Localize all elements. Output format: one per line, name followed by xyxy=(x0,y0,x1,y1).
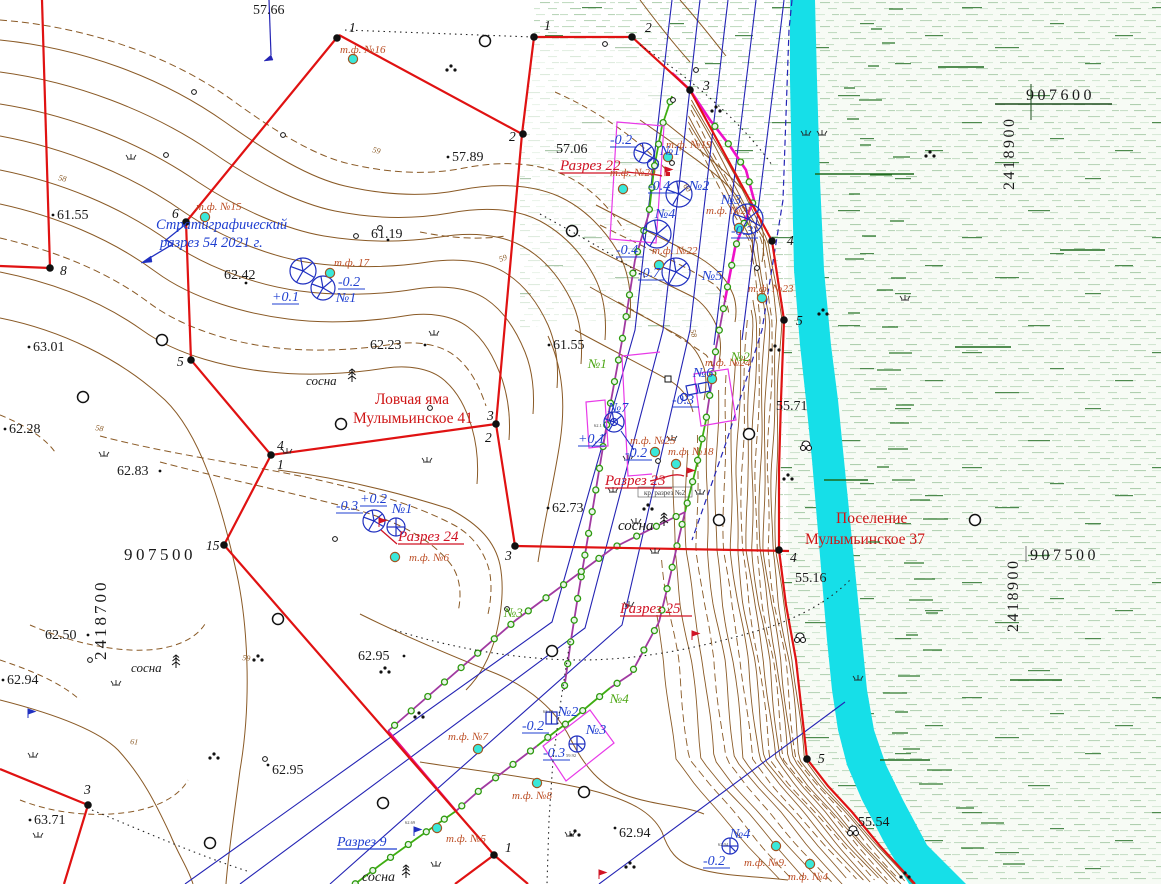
svg-text:5: 5 xyxy=(818,751,825,766)
svg-text:907500: 907500 xyxy=(1030,547,1099,564)
svg-text:1: 1 xyxy=(544,18,551,33)
svg-text:-0.3: -0.3 xyxy=(543,746,565,761)
svg-text:т.ф. №23: т.ф. №23 xyxy=(748,283,794,295)
svg-text:5: 5 xyxy=(796,313,803,328)
svg-text:т.ф. №4: т.ф. №4 xyxy=(788,871,829,883)
svg-text:2418900: 2418900 xyxy=(1005,559,1022,633)
svg-text:4: 4 xyxy=(790,550,797,565)
svg-text:62.04: 62.04 xyxy=(718,842,729,847)
svg-text:3: 3 xyxy=(504,548,512,563)
svg-text:63.01: 63.01 xyxy=(33,340,65,355)
svg-text:+0.2: +0.2 xyxy=(360,492,387,507)
svg-text:т.ф. №20: т.ф. №20 xyxy=(610,167,656,179)
svg-text:1: 1 xyxy=(277,457,284,472)
svg-text:№3: №3 xyxy=(585,723,606,738)
svg-text:-0.2: -0.2 xyxy=(703,854,725,869)
svg-text:№3: №3 xyxy=(503,605,523,620)
svg-text:1: 1 xyxy=(505,840,512,855)
svg-text:сосна: сосна xyxy=(131,660,162,675)
svg-text:Поселение: Поселение xyxy=(836,510,907,527)
svg-text:2: 2 xyxy=(485,430,492,445)
svg-text:разрез 54 2021 г.: разрез 54 2021 г. xyxy=(159,235,263,251)
svg-text:-0.2: -0.2 xyxy=(625,446,647,461)
svg-text:№2: №2 xyxy=(730,349,750,364)
svg-text:№6: №6 xyxy=(692,366,713,381)
svg-text:2: 2 xyxy=(645,20,652,35)
svg-text:Ловчая яма: Ловчая яма xyxy=(375,391,449,408)
svg-text:59: 59 xyxy=(242,653,251,663)
svg-text:62.1: 62.1 xyxy=(594,423,602,428)
svg-text:2: 2 xyxy=(509,129,516,144)
svg-text:-0.7: -0.7 xyxy=(638,266,661,281)
svg-text:т.ф. №5: т.ф. №5 xyxy=(446,833,487,845)
svg-text:15: 15 xyxy=(206,538,220,553)
svg-text:-0.4: -0.4 xyxy=(648,179,670,194)
svg-text:2418700: 2418700 xyxy=(91,580,110,661)
svg-text:т.ф. №8: т.ф. №8 xyxy=(512,790,553,802)
svg-text:55.54: 55.54 xyxy=(858,815,890,830)
svg-text:62.94: 62.94 xyxy=(619,826,651,841)
svg-text:№1: №1 xyxy=(587,356,607,371)
svg-text:2418900: 2418900 xyxy=(1001,117,1018,191)
svg-text:61: 61 xyxy=(130,737,139,747)
svg-text:№5: №5 xyxy=(701,269,722,284)
svg-text:62.23: 62.23 xyxy=(370,338,402,353)
svg-text:57.89: 57.89 xyxy=(452,150,484,165)
svg-text:61.55: 61.55 xyxy=(553,338,585,353)
svg-text:55.71: 55.71 xyxy=(776,399,808,414)
svg-text:№3: №3 xyxy=(720,193,741,208)
svg-text:Разрез 24: Разрез 24 xyxy=(397,529,459,545)
svg-text:62.42: 62.42 xyxy=(224,268,256,283)
svg-text:-0.3: -0.3 xyxy=(336,499,358,514)
svg-text:62.28: 62.28 xyxy=(9,422,41,437)
svg-text:59.92: 59.92 xyxy=(566,753,576,758)
svg-text:сосна: сосна xyxy=(306,373,337,388)
svg-text:т.ф. 17: т.ф. 17 xyxy=(334,257,370,269)
svg-text:63.71: 63.71 xyxy=(34,813,66,828)
svg-text:+0.1: +0.1 xyxy=(578,432,605,447)
svg-text:Мулымьинское 37: Мулымьинское 37 xyxy=(805,531,925,548)
svg-text:Мулымьинское 41: Мулымьинское 41 xyxy=(353,410,473,427)
svg-text:62.50: 62.50 xyxy=(45,628,77,643)
svg-text:5: 5 xyxy=(177,354,184,369)
svg-text:62.69: 62.69 xyxy=(405,820,416,825)
svg-text:3: 3 xyxy=(83,782,91,797)
svg-text:3: 3 xyxy=(702,78,710,93)
svg-text:-0.2: -0.2 xyxy=(522,719,544,734)
svg-text:Разрез 25: Разрез 25 xyxy=(619,601,681,617)
svg-text:т.ф. №15: т.ф. №15 xyxy=(196,201,242,213)
svg-text:3: 3 xyxy=(486,408,494,423)
svg-text:+0.1: +0.1 xyxy=(272,290,299,305)
svg-text:62.95: 62.95 xyxy=(358,649,390,664)
svg-text:№1: №1 xyxy=(335,291,356,306)
svg-text:кр. разрез №2: кр. разрез №2 xyxy=(644,489,686,497)
svg-text:т.ф. №7: т.ф. №7 xyxy=(448,731,489,743)
svg-text:907600: 907600 xyxy=(1026,87,1095,104)
svg-text:4: 4 xyxy=(787,233,794,248)
svg-text:сосна: сосна xyxy=(618,518,653,534)
svg-text:55.16: 55.16 xyxy=(795,571,827,586)
svg-text:№4: №4 xyxy=(729,827,750,842)
svg-text:1: 1 xyxy=(349,20,356,35)
svg-text:58: 58 xyxy=(95,423,104,433)
svg-text:62.95: 62.95 xyxy=(272,763,304,778)
svg-text:8: 8 xyxy=(60,263,67,278)
svg-text:62.94: 62.94 xyxy=(7,673,39,688)
svg-text:-0.2: -0.2 xyxy=(338,275,360,290)
svg-text:62.83: 62.83 xyxy=(117,464,149,479)
svg-text:-0.4: -0.4 xyxy=(616,243,638,258)
svg-text:62.73: 62.73 xyxy=(552,501,584,516)
svg-text:-0.2: -0.2 xyxy=(610,133,632,148)
svg-text:сосна: сосна xyxy=(362,870,395,884)
svg-text:№1: №1 xyxy=(659,144,680,159)
svg-text:№4: №4 xyxy=(654,207,675,222)
svg-text:-0.3: -0.3 xyxy=(672,393,694,408)
svg-text:61.55: 61.55 xyxy=(57,208,89,223)
svg-text:Стратиграфический: Стратиграфический xyxy=(156,217,288,233)
svg-text:-0.3: -0.3 xyxy=(731,224,753,239)
svg-text:№1: №1 xyxy=(391,502,412,517)
svg-text:Разрез 9: Разрез 9 xyxy=(336,835,386,850)
svg-text:№4: №4 xyxy=(609,691,629,706)
svg-text:т.ф. №16: т.ф. №16 xyxy=(340,44,386,56)
svg-text:т.ф. №9.: т.ф. №9. xyxy=(744,857,787,869)
svg-text:т.ф. №18: т.ф. №18 xyxy=(668,446,714,458)
svg-text:т.ф. №6: т.ф. №6 xyxy=(409,552,450,564)
svg-text:Разрез 23: Разрез 23 xyxy=(604,473,666,489)
svg-text:62.10: 62.10 xyxy=(543,709,554,714)
svg-text:т.ф. №22: т.ф. №22 xyxy=(652,245,698,257)
svg-text:57.06: 57.06 xyxy=(556,142,588,157)
svg-text:907500: 907500 xyxy=(124,545,196,564)
svg-text:№7: №7 xyxy=(607,401,629,416)
svg-text:57.66: 57.66 xyxy=(253,3,285,18)
